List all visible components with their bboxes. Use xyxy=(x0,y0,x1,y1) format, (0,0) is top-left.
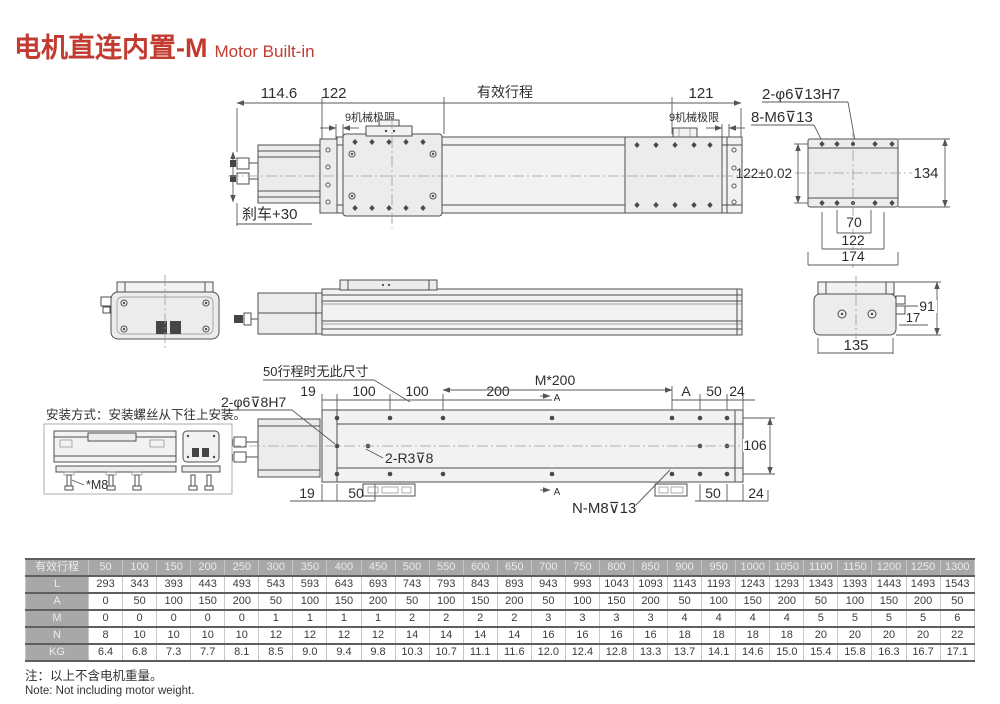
value-cell: 5 xyxy=(906,610,940,627)
value-cell: 2 xyxy=(497,610,531,627)
value-cell: 843 xyxy=(463,576,497,593)
stroke-column-header: 100 xyxy=(123,559,157,576)
value-cell: 1143 xyxy=(668,576,702,593)
value-cell: 14 xyxy=(497,627,531,644)
value-cell: 20 xyxy=(872,627,906,644)
value-cell: 10 xyxy=(123,627,157,644)
value-cell: 0 xyxy=(123,610,157,627)
value-cell: 1043 xyxy=(599,576,633,593)
dim-174: 174 xyxy=(841,248,865,264)
value-cell: 993 xyxy=(565,576,599,593)
value-cell: 200 xyxy=(225,593,259,610)
value-cell: 393 xyxy=(157,576,191,593)
note-chinese: 注：以上不含电机重量。 xyxy=(25,665,194,684)
footnotes: 注：以上不含电机重量。 Note: Not including motor we… xyxy=(25,665,194,697)
value-cell: 100 xyxy=(838,593,872,610)
dim-19-bottom: 19 xyxy=(299,485,315,501)
value-cell: 8.5 xyxy=(259,644,293,661)
value-cell: 5 xyxy=(838,610,872,627)
value-cell: 100 xyxy=(702,593,736,610)
value-cell: 18 xyxy=(702,627,736,644)
table-row-KG: KG6.46.87.37.78.18.59.09.49.810.310.711.… xyxy=(26,644,975,661)
stroke-column-header: 400 xyxy=(327,559,361,576)
technical-drawing: 114.6 122 有效行程 121 9机械极限 9机械极限 xyxy=(0,0,1000,545)
value-cell: 9.8 xyxy=(361,644,395,661)
row-label-cell: A xyxy=(26,593,89,610)
value-cell: 1543 xyxy=(940,576,974,593)
value-cell: 7.7 xyxy=(191,644,225,661)
table-row-M: M00000111122223333444455556 xyxy=(26,610,975,627)
stroke-column-header: 150 xyxy=(157,559,191,576)
row-label-cell: L xyxy=(26,576,89,593)
value-cell: 16 xyxy=(565,627,599,644)
dim-70: 70 xyxy=(846,214,862,230)
value-cell: 3 xyxy=(565,610,599,627)
value-cell: 293 xyxy=(89,576,123,593)
row-label-cell: KG xyxy=(26,644,89,661)
value-cell: 793 xyxy=(429,576,463,593)
value-cell: 12.0 xyxy=(531,644,565,661)
dim-height-134: 134 xyxy=(913,165,938,182)
dim-motor-length: 114.6 xyxy=(261,85,297,102)
dim-100-1: 100 xyxy=(352,383,376,399)
value-cell: 943 xyxy=(531,576,565,593)
note-english: Note: Not including motor weight. xyxy=(25,685,194,697)
value-cell: 18 xyxy=(770,627,804,644)
datasheet-page: 电机直连内置-MMotor Built-in 114.6 122 xyxy=(0,0,1000,704)
dim-effective-stroke: 有效行程 xyxy=(477,84,533,100)
stroke-column-header: 700 xyxy=(531,559,565,576)
n-m8-label: N-M8⊽13 xyxy=(572,500,636,517)
dim-width-tolerance: 122±0.02 xyxy=(736,166,792,181)
table-row-A: A050100150200501001502005010015020050100… xyxy=(26,593,975,610)
stroke-header-cell: 有效行程 xyxy=(26,559,89,576)
value-cell: 15.0 xyxy=(770,644,804,661)
value-cell: 16 xyxy=(634,627,668,644)
dim-19-top: 19 xyxy=(300,383,316,399)
stroke-column-header: 1150 xyxy=(838,559,872,576)
stroke-column-header: 600 xyxy=(463,559,497,576)
value-cell: 18 xyxy=(668,627,702,644)
value-cell: 2 xyxy=(395,610,429,627)
value-cell: 1 xyxy=(293,610,327,627)
value-cell: 100 xyxy=(293,593,327,610)
value-cell: 50 xyxy=(259,593,293,610)
stroke-column-header: 850 xyxy=(634,559,668,576)
dim-24-top: 24 xyxy=(729,383,745,399)
value-cell: 1393 xyxy=(838,576,872,593)
value-cell: 1443 xyxy=(872,576,906,593)
value-cell: 10 xyxy=(225,627,259,644)
value-cell: 200 xyxy=(770,593,804,610)
value-cell: 200 xyxy=(634,593,668,610)
stroke-column-header: 750 xyxy=(565,559,599,576)
value-cell: 1193 xyxy=(702,576,736,593)
value-cell: 14 xyxy=(395,627,429,644)
value-cell: 150 xyxy=(736,593,770,610)
dim-200: 200 xyxy=(486,383,510,399)
value-cell: 6.4 xyxy=(89,644,123,661)
value-cell: 150 xyxy=(191,593,225,610)
value-cell: 1493 xyxy=(906,576,940,593)
brake-label: 刹车+30 xyxy=(242,206,297,223)
dim-122-bottom: 122 xyxy=(841,232,865,248)
value-cell: 13.3 xyxy=(634,644,668,661)
value-cell: 100 xyxy=(565,593,599,610)
dim-24-bottom: 24 xyxy=(748,485,764,501)
value-cell: 1093 xyxy=(634,576,668,593)
value-cell: 1243 xyxy=(736,576,770,593)
dowel-hole-label: 2-φ6⊽13H7 xyxy=(762,86,840,103)
value-cell: 20 xyxy=(906,627,940,644)
install-caption: 安装方式：安装螺丝从下往上安装。 xyxy=(46,407,246,422)
value-cell: 14 xyxy=(429,627,463,644)
value-cell: 1 xyxy=(361,610,395,627)
table-header-row: 有效行程501001502002503003504004505005506006… xyxy=(26,559,975,576)
top-view-drawing: 114.6 122 有效行程 121 9机械极限 9机械极限 xyxy=(228,84,752,228)
value-cell: 0 xyxy=(191,610,225,627)
m8-screw-label: *M8 xyxy=(86,478,108,492)
value-cell: 9.4 xyxy=(327,644,361,661)
stroke-spec-table: 有效行程501001502002503003504004505005506006… xyxy=(25,558,975,662)
r3-hole-label: 2-R3⊽8 xyxy=(385,450,434,466)
stroke-column-header: 950 xyxy=(702,559,736,576)
value-cell: 543 xyxy=(259,576,293,593)
value-cell: 22 xyxy=(940,627,974,644)
value-cell: 343 xyxy=(123,576,157,593)
value-cell: 693 xyxy=(361,576,395,593)
dim-50-bottom-left: 50 xyxy=(348,485,364,501)
table-row-N: N810101010121212121414141416161616181818… xyxy=(26,627,975,644)
value-cell: 200 xyxy=(497,593,531,610)
dim-135: 135 xyxy=(843,337,868,354)
end-face-view-drawing: 2-φ6⊽13H7 8-M6⊽13 122±0.02 134 70 xyxy=(736,86,950,268)
stroke-column-header: 1300 xyxy=(940,559,974,576)
value-cell: 8.1 xyxy=(225,644,259,661)
value-cell: 100 xyxy=(429,593,463,610)
value-cell: 16 xyxy=(599,627,633,644)
value-cell: 0 xyxy=(157,610,191,627)
dim-m200: M*200 xyxy=(535,372,576,388)
value-cell: 3 xyxy=(599,610,633,627)
bottom-view-drawing: 19 100 100 200 M*200 A A A 50 24 106 xyxy=(221,364,775,517)
value-cell: 200 xyxy=(361,593,395,610)
section-a-bottom: A xyxy=(554,487,561,498)
value-cell: 1293 xyxy=(770,576,804,593)
value-cell: 16 xyxy=(531,627,565,644)
left-end-view-drawing xyxy=(101,275,219,348)
thread-hole-label: 8-M6⊽13 xyxy=(751,109,813,126)
stroke-column-header: 1100 xyxy=(804,559,838,576)
dim-a-top: A xyxy=(681,383,691,399)
value-cell: 15.4 xyxy=(804,644,838,661)
value-cell: 20 xyxy=(804,627,838,644)
stroke-column-header: 1200 xyxy=(872,559,906,576)
value-cell: 9.0 xyxy=(293,644,327,661)
side-view-drawing xyxy=(234,280,742,335)
stroke-column-header: 50 xyxy=(89,559,123,576)
value-cell: 10 xyxy=(157,627,191,644)
value-cell: 643 xyxy=(327,576,361,593)
mech-limit-right-label: 9机械极限 xyxy=(669,110,719,124)
stroke-column-header: 1250 xyxy=(906,559,940,576)
value-cell: 16.7 xyxy=(906,644,940,661)
note-stroke50: 50行程时无此尺寸 xyxy=(263,364,368,379)
section-a-top: A xyxy=(554,393,561,404)
stroke-column-header: 900 xyxy=(668,559,702,576)
stroke-column-header: 450 xyxy=(361,559,395,576)
value-cell: 15.8 xyxy=(838,644,872,661)
value-cell: 150 xyxy=(463,593,497,610)
table-row-L: L293343393443493543593643693743793843893… xyxy=(26,576,975,593)
stroke-column-header: 1000 xyxy=(736,559,770,576)
value-cell: 12.8 xyxy=(599,644,633,661)
value-cell: 4 xyxy=(702,610,736,627)
dim-91: 91 xyxy=(919,298,935,314)
stroke-column-header: 250 xyxy=(225,559,259,576)
value-cell: 6.8 xyxy=(123,644,157,661)
value-cell: 2 xyxy=(429,610,463,627)
value-cell: 1 xyxy=(327,610,361,627)
dim-50-bottom-right: 50 xyxy=(705,485,721,501)
stroke-column-header: 350 xyxy=(293,559,327,576)
value-cell: 1 xyxy=(259,610,293,627)
value-cell: 12.4 xyxy=(565,644,599,661)
stroke-column-header: 500 xyxy=(395,559,429,576)
value-cell: 14.6 xyxy=(736,644,770,661)
value-cell: 11.1 xyxy=(463,644,497,661)
value-cell: 2 xyxy=(463,610,497,627)
value-cell: 443 xyxy=(191,576,225,593)
row-label-cell: N xyxy=(26,627,89,644)
value-cell: 593 xyxy=(293,576,327,593)
value-cell: 150 xyxy=(327,593,361,610)
dim-106: 106 xyxy=(743,437,767,453)
value-cell: 7.3 xyxy=(157,644,191,661)
stroke-column-header: 550 xyxy=(429,559,463,576)
value-cell: 50 xyxy=(531,593,565,610)
value-cell: 16.3 xyxy=(872,644,906,661)
spec-table: 有效行程501001502002503003504004505005506006… xyxy=(25,558,975,662)
value-cell: 0 xyxy=(89,593,123,610)
value-cell: 17.1 xyxy=(940,644,974,661)
value-cell: 100 xyxy=(157,593,191,610)
value-cell: 12 xyxy=(259,627,293,644)
value-cell: 150 xyxy=(599,593,633,610)
value-cell: 50 xyxy=(940,593,974,610)
installation-inset: 安装方式：安装螺丝从下往上安装。 *M8 xyxy=(44,407,246,494)
dim-100-2: 100 xyxy=(405,383,429,399)
dim-right-end: 121 xyxy=(688,85,713,102)
value-cell: 10.7 xyxy=(429,644,463,661)
value-cell: 5 xyxy=(872,610,906,627)
value-cell: 1343 xyxy=(804,576,838,593)
value-cell: 14 xyxy=(463,627,497,644)
value-cell: 0 xyxy=(89,610,123,627)
value-cell: 12 xyxy=(293,627,327,644)
value-cell: 4 xyxy=(770,610,804,627)
value-cell: 200 xyxy=(906,593,940,610)
value-cell: 0 xyxy=(225,610,259,627)
value-cell: 12 xyxy=(327,627,361,644)
stroke-column-header: 1050 xyxy=(770,559,804,576)
value-cell: 14.1 xyxy=(702,644,736,661)
value-cell: 150 xyxy=(872,593,906,610)
value-cell: 893 xyxy=(497,576,531,593)
value-cell: 4 xyxy=(668,610,702,627)
value-cell: 743 xyxy=(395,576,429,593)
value-cell: 11.6 xyxy=(497,644,531,661)
value-cell: 493 xyxy=(225,576,259,593)
row-label-cell: M xyxy=(26,610,89,627)
right-end-view-drawing: 17 91 135 xyxy=(814,276,941,354)
value-cell: 13.7 xyxy=(668,644,702,661)
dim-carriage-length: 122 xyxy=(321,85,346,102)
dim-50-top: 50 xyxy=(706,383,722,399)
value-cell: 50 xyxy=(804,593,838,610)
value-cell: 3 xyxy=(634,610,668,627)
stroke-column-header: 650 xyxy=(497,559,531,576)
value-cell: 12 xyxy=(361,627,395,644)
value-cell: 3 xyxy=(531,610,565,627)
value-cell: 50 xyxy=(395,593,429,610)
stroke-column-header: 300 xyxy=(259,559,293,576)
value-cell: 5 xyxy=(804,610,838,627)
value-cell: 20 xyxy=(838,627,872,644)
stroke-column-header: 200 xyxy=(191,559,225,576)
value-cell: 50 xyxy=(123,593,157,610)
value-cell: 6 xyxy=(940,610,974,627)
value-cell: 18 xyxy=(736,627,770,644)
stroke-column-header: 800 xyxy=(599,559,633,576)
value-cell: 10.3 xyxy=(395,644,429,661)
value-cell: 4 xyxy=(736,610,770,627)
value-cell: 8 xyxy=(89,627,123,644)
value-cell: 50 xyxy=(668,593,702,610)
value-cell: 10 xyxy=(191,627,225,644)
